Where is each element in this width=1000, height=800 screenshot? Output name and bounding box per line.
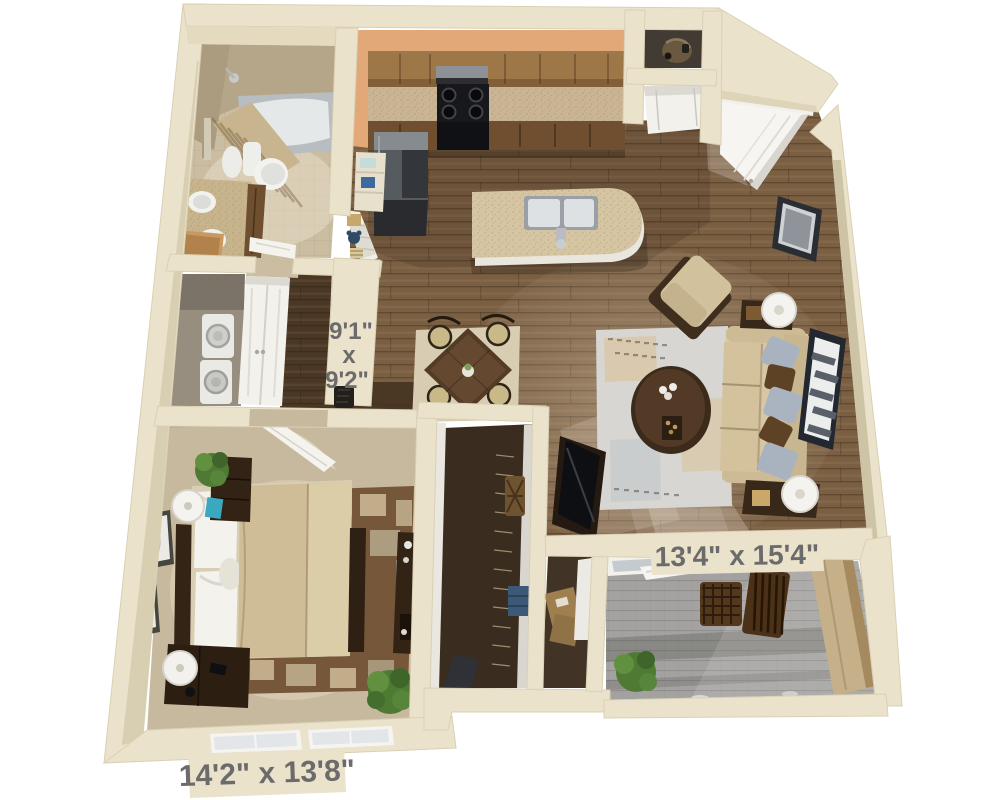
svg-text:9'1": 9'1" <box>329 318 373 345</box>
svg-text:14'2" x 13'8": 14'2" x 13'8" <box>178 754 355 793</box>
svg-text:9'2": 9'2" <box>325 367 369 394</box>
svg-text:x: x <box>342 342 356 369</box>
svg-text:13'4" x 15'4": 13'4" x 15'4" <box>654 539 819 573</box>
